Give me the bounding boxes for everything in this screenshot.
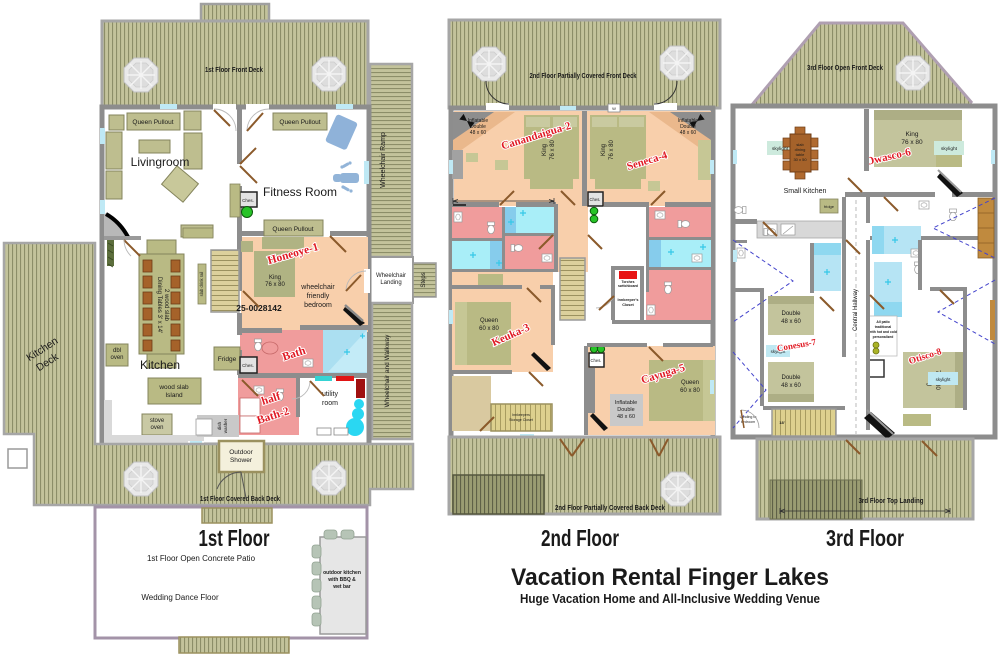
svg-text:2 wood slab: 2 wood slab — [163, 289, 169, 322]
svg-text:friendly: friendly — [307, 293, 330, 300]
svg-text:48 x 60: 48 x 60 — [781, 319, 801, 325]
svg-text:dish: dish — [217, 421, 222, 430]
svg-text:Landing: Landing — [380, 280, 401, 286]
svg-text:Innkeepers: Innkeepers — [512, 413, 530, 417]
svg-text:King: King — [269, 275, 281, 281]
svg-text:utility: utility — [322, 391, 338, 398]
svg-text:bedroom: bedroom — [304, 302, 332, 309]
svg-text:traditional: traditional — [875, 325, 891, 329]
svg-text:King: King — [905, 131, 918, 138]
svg-text:Wheelchair Ramp: Wheelchair Ramp — [380, 132, 387, 188]
svg-text:Livingroom: Livingroom — [131, 155, 190, 169]
svg-text:slab drink rail: slab drink rail — [199, 272, 204, 297]
svg-text:48 x 60: 48 x 60 — [470, 130, 487, 136]
svg-text:King: King — [542, 144, 548, 156]
svg-text:3rd Floor Top Landing: 3rd Floor Top Landing — [859, 498, 924, 505]
svg-text:with BBQ &: with BBQ & — [327, 577, 356, 583]
svg-text:2nd Floor: 2nd Floor — [541, 525, 619, 551]
svg-text:3rd Floor Open Front Deck: 3rd Floor Open Front Deck — [807, 65, 883, 72]
svg-text:oven: oven — [150, 425, 163, 431]
svg-text:76 x 80: 76 x 80 — [550, 139, 556, 159]
svg-text:Wheelchair and Walkway: Wheelchair and Walkway — [384, 334, 391, 407]
svg-text:60 x 80: 60 x 80 — [680, 388, 700, 394]
svg-text:Island: Island — [165, 392, 183, 399]
svg-text:King: King — [601, 144, 607, 156]
svg-text:2nd Floor Partially Covered Ba: 2nd Floor Partially Covered Back Deck — [555, 505, 665, 512]
svg-text:Inflatable: Inflatable — [615, 400, 637, 406]
svg-text:18': 18' — [779, 420, 784, 425]
svg-text:76 x 80: 76 x 80 — [609, 139, 615, 159]
svg-text:wood slab: wood slab — [158, 384, 189, 391]
svg-text:Fridge: Fridge — [218, 356, 237, 363]
svg-text:Queen Pullout: Queen Pullout — [279, 119, 320, 126]
svg-text:48 x 60: 48 x 60 — [617, 414, 635, 420]
svg-text:1st Floor: 1st Floor — [199, 525, 270, 551]
svg-text:Innkeeper's: Innkeeper's — [618, 298, 639, 302]
svg-text:Small Kitchen: Small Kitchen — [784, 188, 827, 195]
svg-text:Ches.: Ches. — [242, 198, 254, 203]
svg-text:W: W — [612, 106, 616, 111]
svg-text:Huge Vacation Home and All-Inc: Huge Vacation Home and All-Inclusive Wed… — [520, 592, 820, 606]
svg-text:room: room — [322, 400, 338, 407]
svg-text:48 x 60: 48 x 60 — [680, 130, 697, 136]
svg-text:Queen: Queen — [681, 380, 699, 386]
svg-text:1st Floor Front Deck: 1st Floor Front Deck — [205, 67, 263, 74]
svg-text:2nd Floor Partially Covered Fr: 2nd Floor Partially Covered Front Deck — [530, 73, 637, 80]
svg-text:48 x 60: 48 x 60 — [781, 383, 801, 389]
svg-text:with hot and cold: with hot and cold — [868, 330, 897, 334]
svg-text:Dining Tables 3' x 14': Dining Tables 3' x 14' — [156, 277, 162, 333]
svg-text:Wedding Dance Floor: Wedding Dance Floor — [141, 593, 219, 602]
svg-text:skylight: skylight — [936, 377, 951, 382]
svg-text:switchboard: switchboard — [618, 284, 638, 288]
svg-text:Ches.: Ches. — [242, 363, 254, 368]
svg-text:Double: Double — [617, 407, 634, 413]
svg-text:3rd Floor: 3rd Floor — [826, 525, 904, 551]
svg-text:Outdoor: Outdoor — [229, 449, 253, 456]
svg-text:Ches.: Ches. — [591, 358, 602, 363]
svg-text:outdoor kitchen: outdoor kitchen — [323, 570, 361, 576]
svg-text:Fitness Room: Fitness Room — [263, 185, 337, 199]
svg-text:wet bar: wet bar — [332, 584, 351, 590]
svg-text:All patio: All patio — [876, 320, 889, 324]
svg-text:stove: stove — [150, 418, 165, 424]
svg-text:76 x 80: 76 x 80 — [901, 139, 923, 146]
svg-text:wheelchair: wheelchair — [300, 284, 335, 291]
svg-text:Steps: Steps — [421, 272, 427, 287]
svg-text:fridge: fridge — [824, 204, 835, 209]
svg-text:Central Hallway: Central Hallway — [853, 289, 859, 331]
svg-text:76 x 80: 76 x 80 — [265, 282, 285, 288]
svg-text:Wheelchair: Wheelchair — [376, 273, 406, 279]
svg-text:oven: oven — [110, 355, 123, 361]
svg-text:Closet: Closet — [622, 303, 634, 307]
svg-text:Queen Pullout: Queen Pullout — [272, 226, 313, 233]
svg-text:1st Floor Open Concrete Patio: 1st Floor Open Concrete Patio — [147, 554, 256, 563]
svg-text:Double: Double — [781, 375, 801, 381]
svg-text:dbl: dbl — [113, 348, 121, 354]
svg-text:Queen: Queen — [480, 318, 498, 324]
svg-text:Kitchen: Kitchen — [140, 358, 180, 372]
svg-text:Ches.: Ches. — [590, 197, 601, 202]
svg-text:30 x 50: 30 x 50 — [793, 157, 807, 162]
svg-text:25-0028142: 25-0028142 — [236, 303, 282, 313]
svg-text:Double: Double — [781, 311, 801, 317]
svg-text:skylight: skylight — [941, 146, 958, 152]
svg-text:personalized: personalized — [873, 335, 894, 339]
svg-text:Shower: Shower — [230, 457, 253, 464]
svg-text:washer: washer — [223, 418, 228, 433]
svg-text:1st Floor Covered Back Deck: 1st Floor Covered Back Deck — [200, 496, 280, 503]
svg-text:Queen Pullout: Queen Pullout — [132, 119, 173, 126]
svg-text:Vacation Rental Finger Lakes: Vacation Rental Finger Lakes — [511, 564, 829, 591]
svg-text:Storage Closet: Storage Closet — [509, 418, 533, 422]
svg-text:60 x 80: 60 x 80 — [479, 326, 499, 332]
